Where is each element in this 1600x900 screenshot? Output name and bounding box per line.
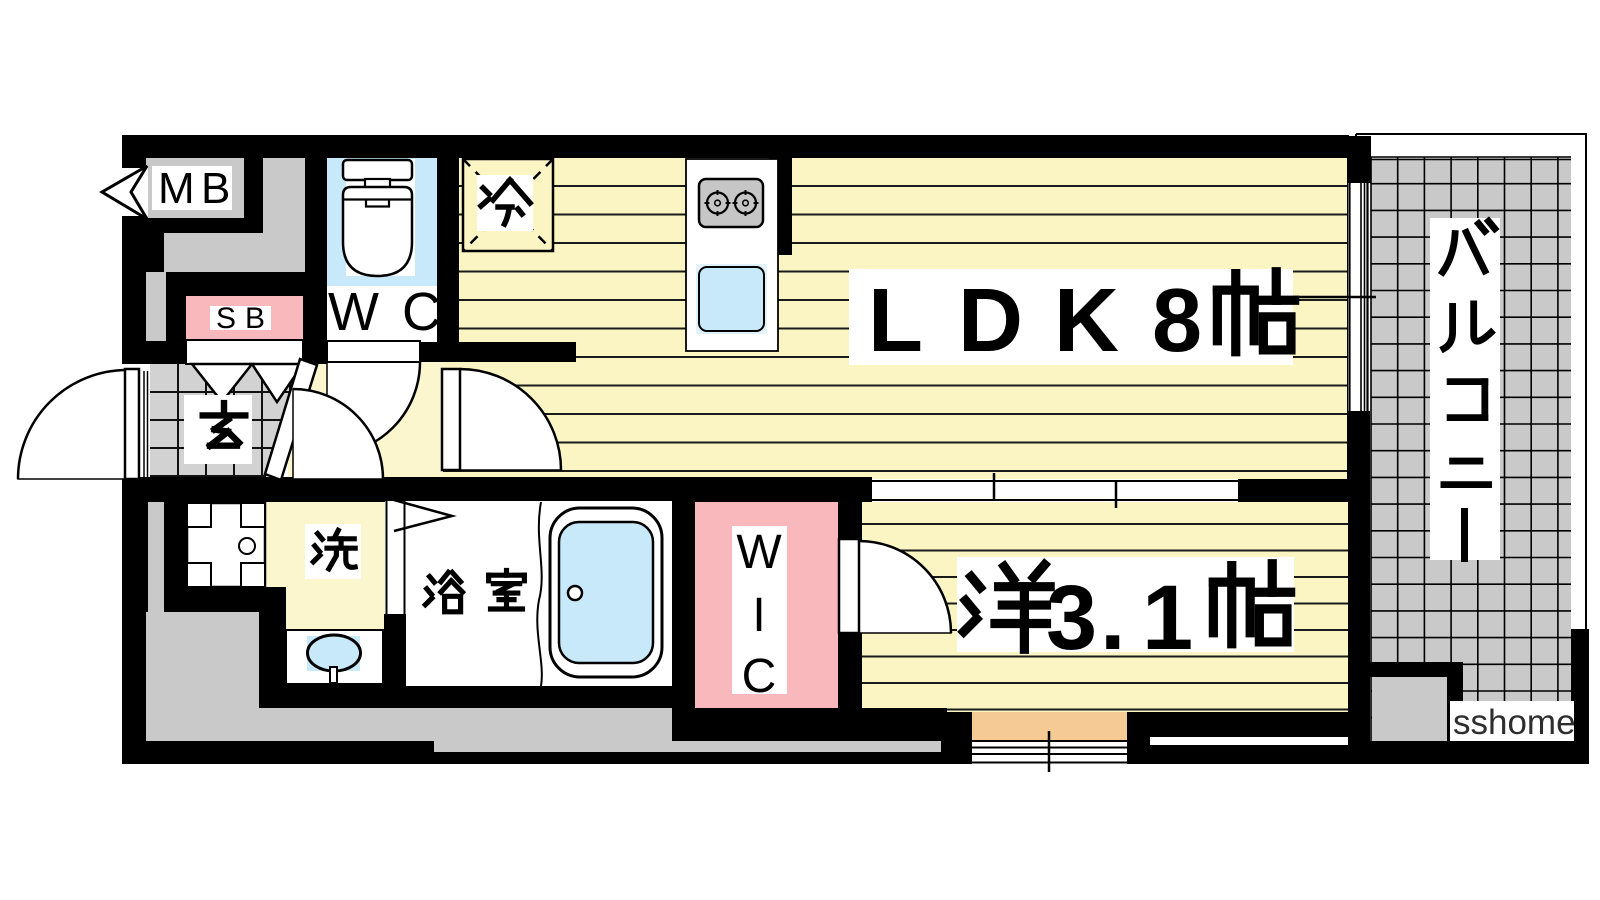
- svg-text:3: 3: [1046, 567, 1097, 669]
- svg-text:W: W: [736, 526, 782, 579]
- svg-text:K: K: [1054, 271, 1119, 371]
- svg-text:W: W: [328, 282, 379, 342]
- svg-text:D: D: [958, 271, 1023, 371]
- svg-text:S: S: [216, 302, 236, 335]
- svg-text:C: C: [742, 650, 777, 703]
- svg-text:C: C: [402, 282, 441, 342]
- svg-text:B: B: [245, 302, 265, 335]
- svg-text:M: M: [158, 164, 195, 213]
- svg-text:L: L: [868, 271, 923, 371]
- svg-text:.: .: [1100, 567, 1126, 669]
- svg-text:8: 8: [1152, 271, 1202, 371]
- svg-text:I: I: [752, 589, 765, 642]
- svg-text:sshome: sshome: [1453, 703, 1576, 742]
- svg-text:1: 1: [1142, 567, 1193, 669]
- svg-text:B: B: [201, 164, 230, 213]
